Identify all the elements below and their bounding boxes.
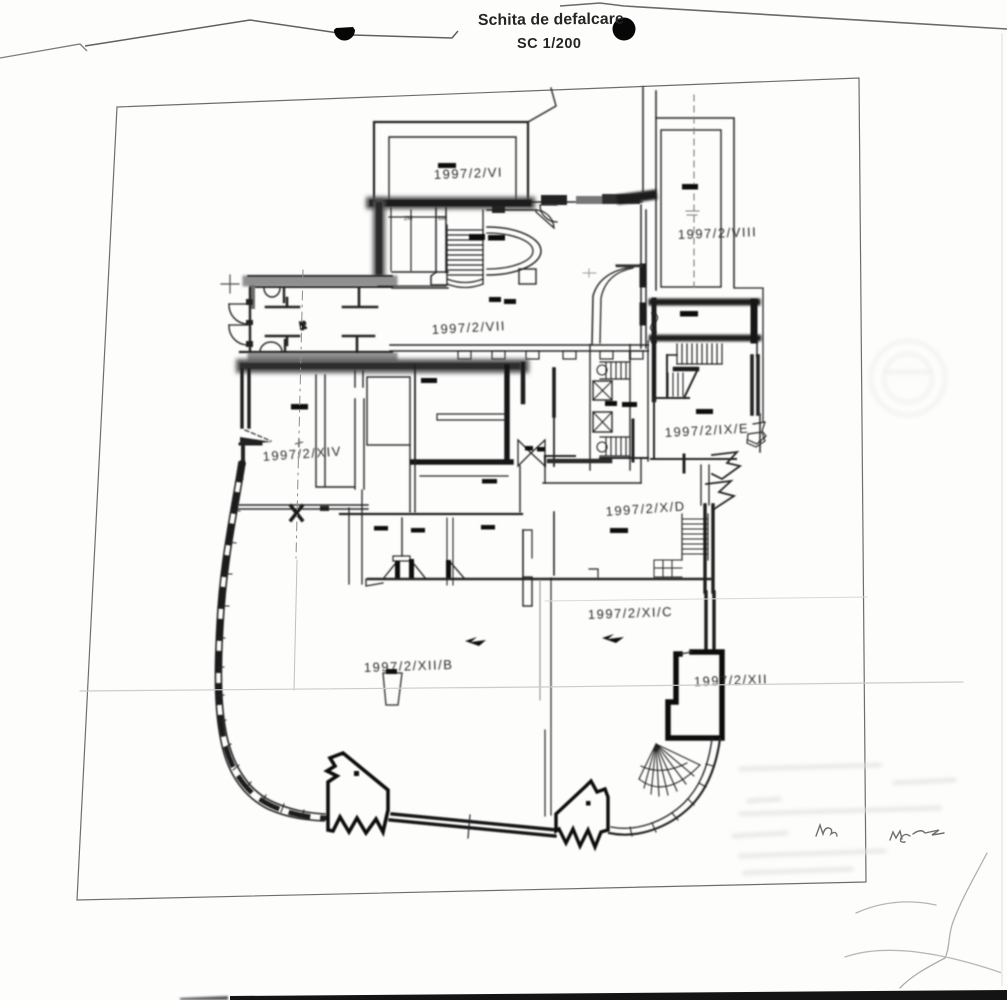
svg-text:SC 1/200: SC 1/200 [517, 36, 581, 52]
svg-text:6M: 6M [438, 216, 446, 222]
svg-text:1997/2/XI/C: 1997/2/XI/C [588, 604, 674, 622]
svg-text:Schita de defalcare: Schita de defalcare [478, 11, 624, 29]
svg-text:1997/2/XII: 1997/2/XII [694, 671, 769, 689]
svg-text:2M: 2M [404, 216, 412, 222]
svg-text:1997/2/XII/B: 1997/2/XII/B [364, 657, 454, 675]
svg-text:24: 24 [298, 321, 306, 330]
svg-text:1997/2/VIII: 1997/2/VIII [678, 224, 758, 242]
